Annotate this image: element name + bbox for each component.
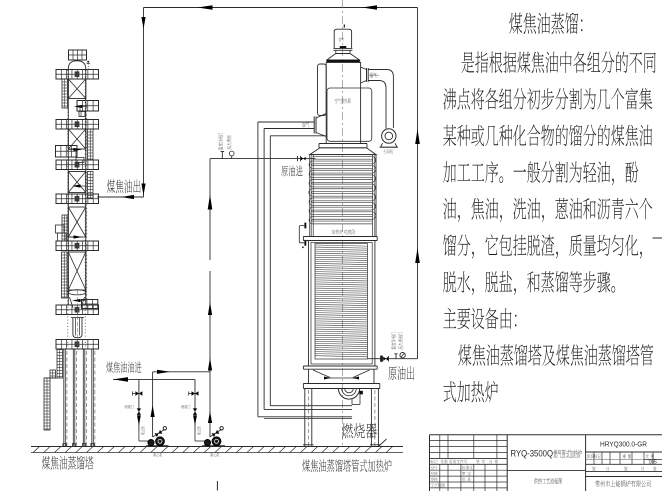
svg-text:HRYQ300.0-GR: HRYQ300.0-GR [600, 440, 647, 449]
svg-text:165: 165 [649, 460, 658, 466]
svg-text:RYQ-3500Q: RYQ-3500Q [511, 449, 554, 460]
